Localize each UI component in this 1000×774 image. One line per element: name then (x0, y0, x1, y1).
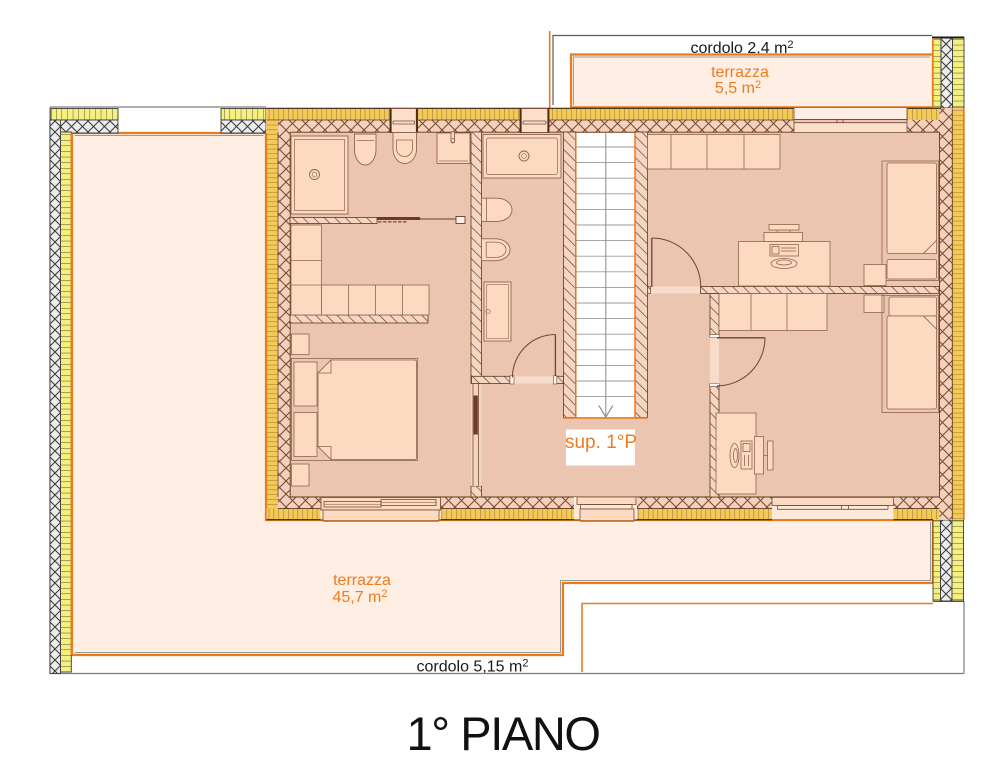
svg-text:45,7 m2: 45,7 m2 (332, 588, 387, 606)
svg-text:5,5 m2: 5,5 m2 (715, 79, 761, 97)
svg-text:cordolo 5,15 m2: cordolo 5,15 m2 (417, 658, 529, 676)
svg-text:terrazza: terrazza (333, 572, 391, 589)
svg-text:sup. 1°P: sup. 1°P (565, 432, 637, 453)
svg-text:1° PIANO: 1° PIANO (406, 707, 599, 760)
